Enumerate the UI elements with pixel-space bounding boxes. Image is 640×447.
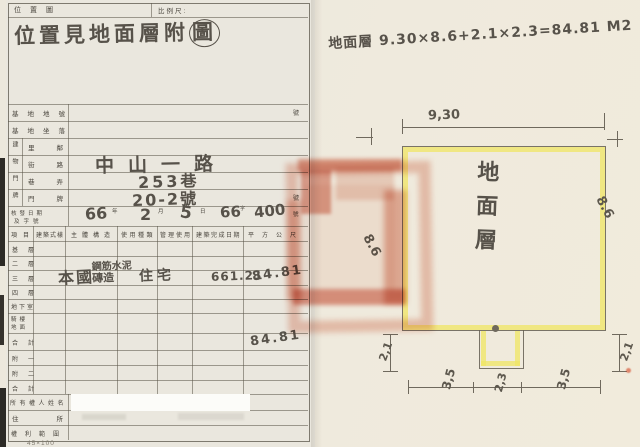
address-row-label: 門牌	[28, 193, 85, 203]
issue-month-unit: 月	[158, 207, 164, 215]
dim-top: 9,30	[428, 107, 461, 123]
site-lot-unit: 號	[293, 108, 299, 117]
col-header-use: 使用種類	[121, 230, 155, 239]
issue-label-line2: 及字號	[14, 217, 43, 225]
floor-row-label: 附二	[12, 369, 44, 378]
floor-row-label: 合計	[12, 338, 44, 347]
issue-number: 400	[253, 200, 286, 221]
scanned-document: 位置圖 比例尺: 位置見地面層附圖 基地地號 號 基地坐落 建物門牌 里鄰 街路…	[0, 0, 640, 447]
floor-row-label: 基層	[12, 245, 44, 254]
redaction-box	[71, 394, 250, 411]
form-footer-note: 45×100	[27, 440, 55, 447]
floor-row-label: 合計	[12, 384, 44, 393]
floor-row-label: 附一	[12, 354, 44, 363]
entry-use: 住宅	[139, 264, 176, 285]
col-header-completion: 建築完成日期	[196, 230, 241, 239]
redacted-smudge	[178, 413, 244, 420]
issue-year: 66	[85, 203, 108, 223]
floor-row-label: 地下室	[11, 302, 35, 311]
col-header-management: 管理使用	[160, 230, 192, 239]
owner-name-label: 所有權人姓名	[10, 398, 67, 407]
dim-side-right: 2,1	[617, 340, 636, 363]
site-location-label: 基地坐落	[12, 125, 74, 135]
floor-row-label: 三層	[12, 274, 44, 283]
address-row-label: 街路	[28, 159, 85, 169]
dim-side-left: 2,1	[376, 340, 395, 363]
entry-style: 本國	[57, 263, 94, 289]
address-row-label: 巷弄	[28, 176, 85, 186]
issue-day-unit: 日	[200, 207, 206, 215]
circled-char: 圖	[189, 19, 221, 48]
issue-label-line1: 核發日期	[11, 209, 45, 217]
dim-bottom-mid: 2,3	[492, 371, 510, 393]
map-box-label: 位置圖	[14, 5, 62, 15]
issue-year-unit: 年	[112, 207, 118, 215]
form-outer-border	[8, 3, 310, 442]
scan-edge	[0, 295, 4, 345]
col-header-style: 建築式樣	[36, 230, 64, 239]
address-row-label: 里鄰	[28, 142, 85, 152]
floor-row-label: 騎樓地面	[11, 316, 33, 332]
red-speck	[626, 368, 631, 373]
redacted-smudge	[82, 414, 126, 420]
issue-ref: 66	[220, 202, 242, 221]
floor-row-label: 四層	[12, 288, 44, 297]
plan-room-label: 地面層	[466, 159, 502, 262]
address-group-label: 建物門牌	[10, 141, 19, 205]
entry-structure: 鋼筋水泥 磚造	[92, 260, 145, 285]
scan-edge	[0, 158, 5, 266]
col-header-item: 項目	[11, 230, 35, 239]
plan-opening-marker	[492, 325, 499, 332]
handwritten-area-note: 地面層 9.30×8.6+2.1×2.3=84.81 M2	[328, 15, 633, 54]
col-header-structure: 主體構造	[71, 230, 115, 239]
handwritten-title: 位置見地面層附圖	[14, 16, 221, 50]
issue-ref-unit: 字	[240, 205, 245, 212]
issue-month: 2	[140, 205, 151, 224]
rights-scope-label: 權利範圍	[11, 429, 67, 438]
floor-row-label: 二層	[12, 259, 44, 268]
site-lot-label: 基地地號	[12, 108, 74, 118]
scan-edge	[0, 388, 6, 447]
scale-label: 比例尺:	[158, 5, 187, 15]
